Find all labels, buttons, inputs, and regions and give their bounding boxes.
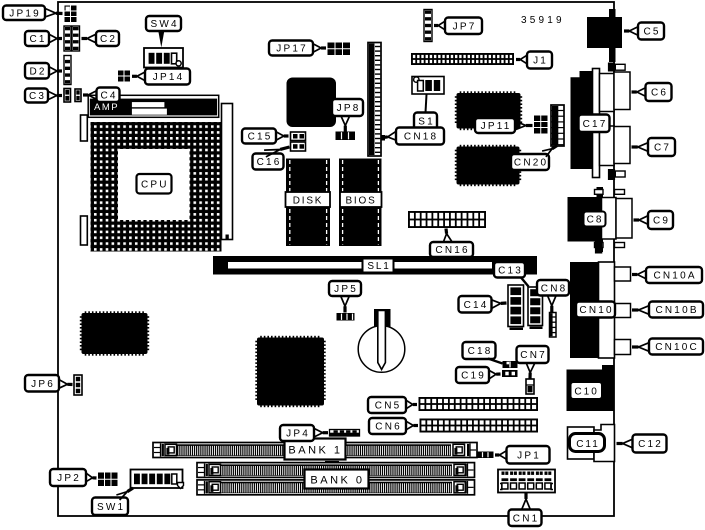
svg-text:C15: C15 [248, 132, 273, 143]
svg-text:CN8: CN8 [541, 283, 568, 294]
svg-text:C1: C1 [30, 34, 47, 45]
svg-text:C9: C9 [653, 216, 670, 227]
svg-text:D2: D2 [30, 66, 47, 77]
svg-text:C7: C7 [654, 143, 671, 154]
svg-text:CN10B: CN10B [655, 305, 698, 316]
svg-text:BANK 1: BANK 1 [288, 445, 342, 457]
svg-text:CN10: CN10 [579, 305, 613, 316]
svg-text:CN10C: CN10C [655, 342, 699, 353]
svg-text:AMP: AMP [94, 102, 119, 113]
svg-text:C4: C4 [101, 90, 118, 101]
svg-text:BANK 0: BANK 0 [310, 475, 364, 487]
svg-text:JP8: JP8 [337, 103, 361, 114]
svg-text:JP19: JP19 [9, 8, 41, 19]
svg-text:BIOS: BIOS [345, 196, 376, 207]
svg-text:SL1: SL1 [367, 261, 390, 272]
svg-text:DISK: DISK [293, 196, 324, 207]
svg-text:CN1: CN1 [513, 513, 540, 524]
svg-text:CN20: CN20 [514, 158, 548, 169]
svg-text:C17: C17 [583, 119, 608, 130]
svg-text:C8: C8 [587, 215, 604, 226]
svg-text:CN6: CN6 [375, 422, 402, 433]
svg-text:JP1: JP1 [517, 450, 541, 461]
svg-text:SW4: SW4 [150, 19, 178, 30]
svg-text:C5: C5 [644, 27, 661, 38]
svg-text:S1: S1 [418, 117, 435, 128]
svg-text:JP11: JP11 [481, 121, 512, 132]
svg-text:JP2: JP2 [57, 473, 81, 484]
svg-text:C11: C11 [576, 439, 600, 450]
svg-text:JP17: JP17 [276, 44, 308, 55]
svg-text:C18: C18 [468, 346, 493, 357]
svg-text:CN7: CN7 [520, 350, 547, 361]
svg-text:CN10A: CN10A [653, 271, 696, 282]
svg-text:CN5: CN5 [375, 401, 402, 412]
svg-text:CN18: CN18 [404, 132, 438, 143]
svg-text:C13: C13 [498, 265, 523, 276]
svg-text:JP7: JP7 [453, 21, 477, 32]
svg-text:CPU: CPU [141, 180, 169, 191]
svg-text:C2: C2 [100, 34, 117, 45]
svg-text:JP5: JP5 [334, 284, 358, 295]
svg-text:CN16: CN16 [435, 245, 469, 256]
svg-text:C12: C12 [638, 439, 663, 450]
svg-text:35919: 35919 [521, 15, 565, 26]
svg-text:C19: C19 [461, 371, 486, 382]
svg-text:SW1: SW1 [97, 502, 125, 513]
svg-text:C16: C16 [257, 157, 282, 168]
svg-text:JP6: JP6 [31, 379, 55, 390]
svg-text:C14: C14 [464, 300, 489, 311]
svg-text:J1: J1 [533, 56, 548, 67]
svg-text:C3: C3 [29, 91, 46, 102]
svg-text:JP4: JP4 [286, 429, 310, 440]
svg-text:C10: C10 [574, 387, 598, 398]
svg-text:JP14: JP14 [153, 72, 185, 83]
svg-text:C6: C6 [651, 88, 668, 99]
